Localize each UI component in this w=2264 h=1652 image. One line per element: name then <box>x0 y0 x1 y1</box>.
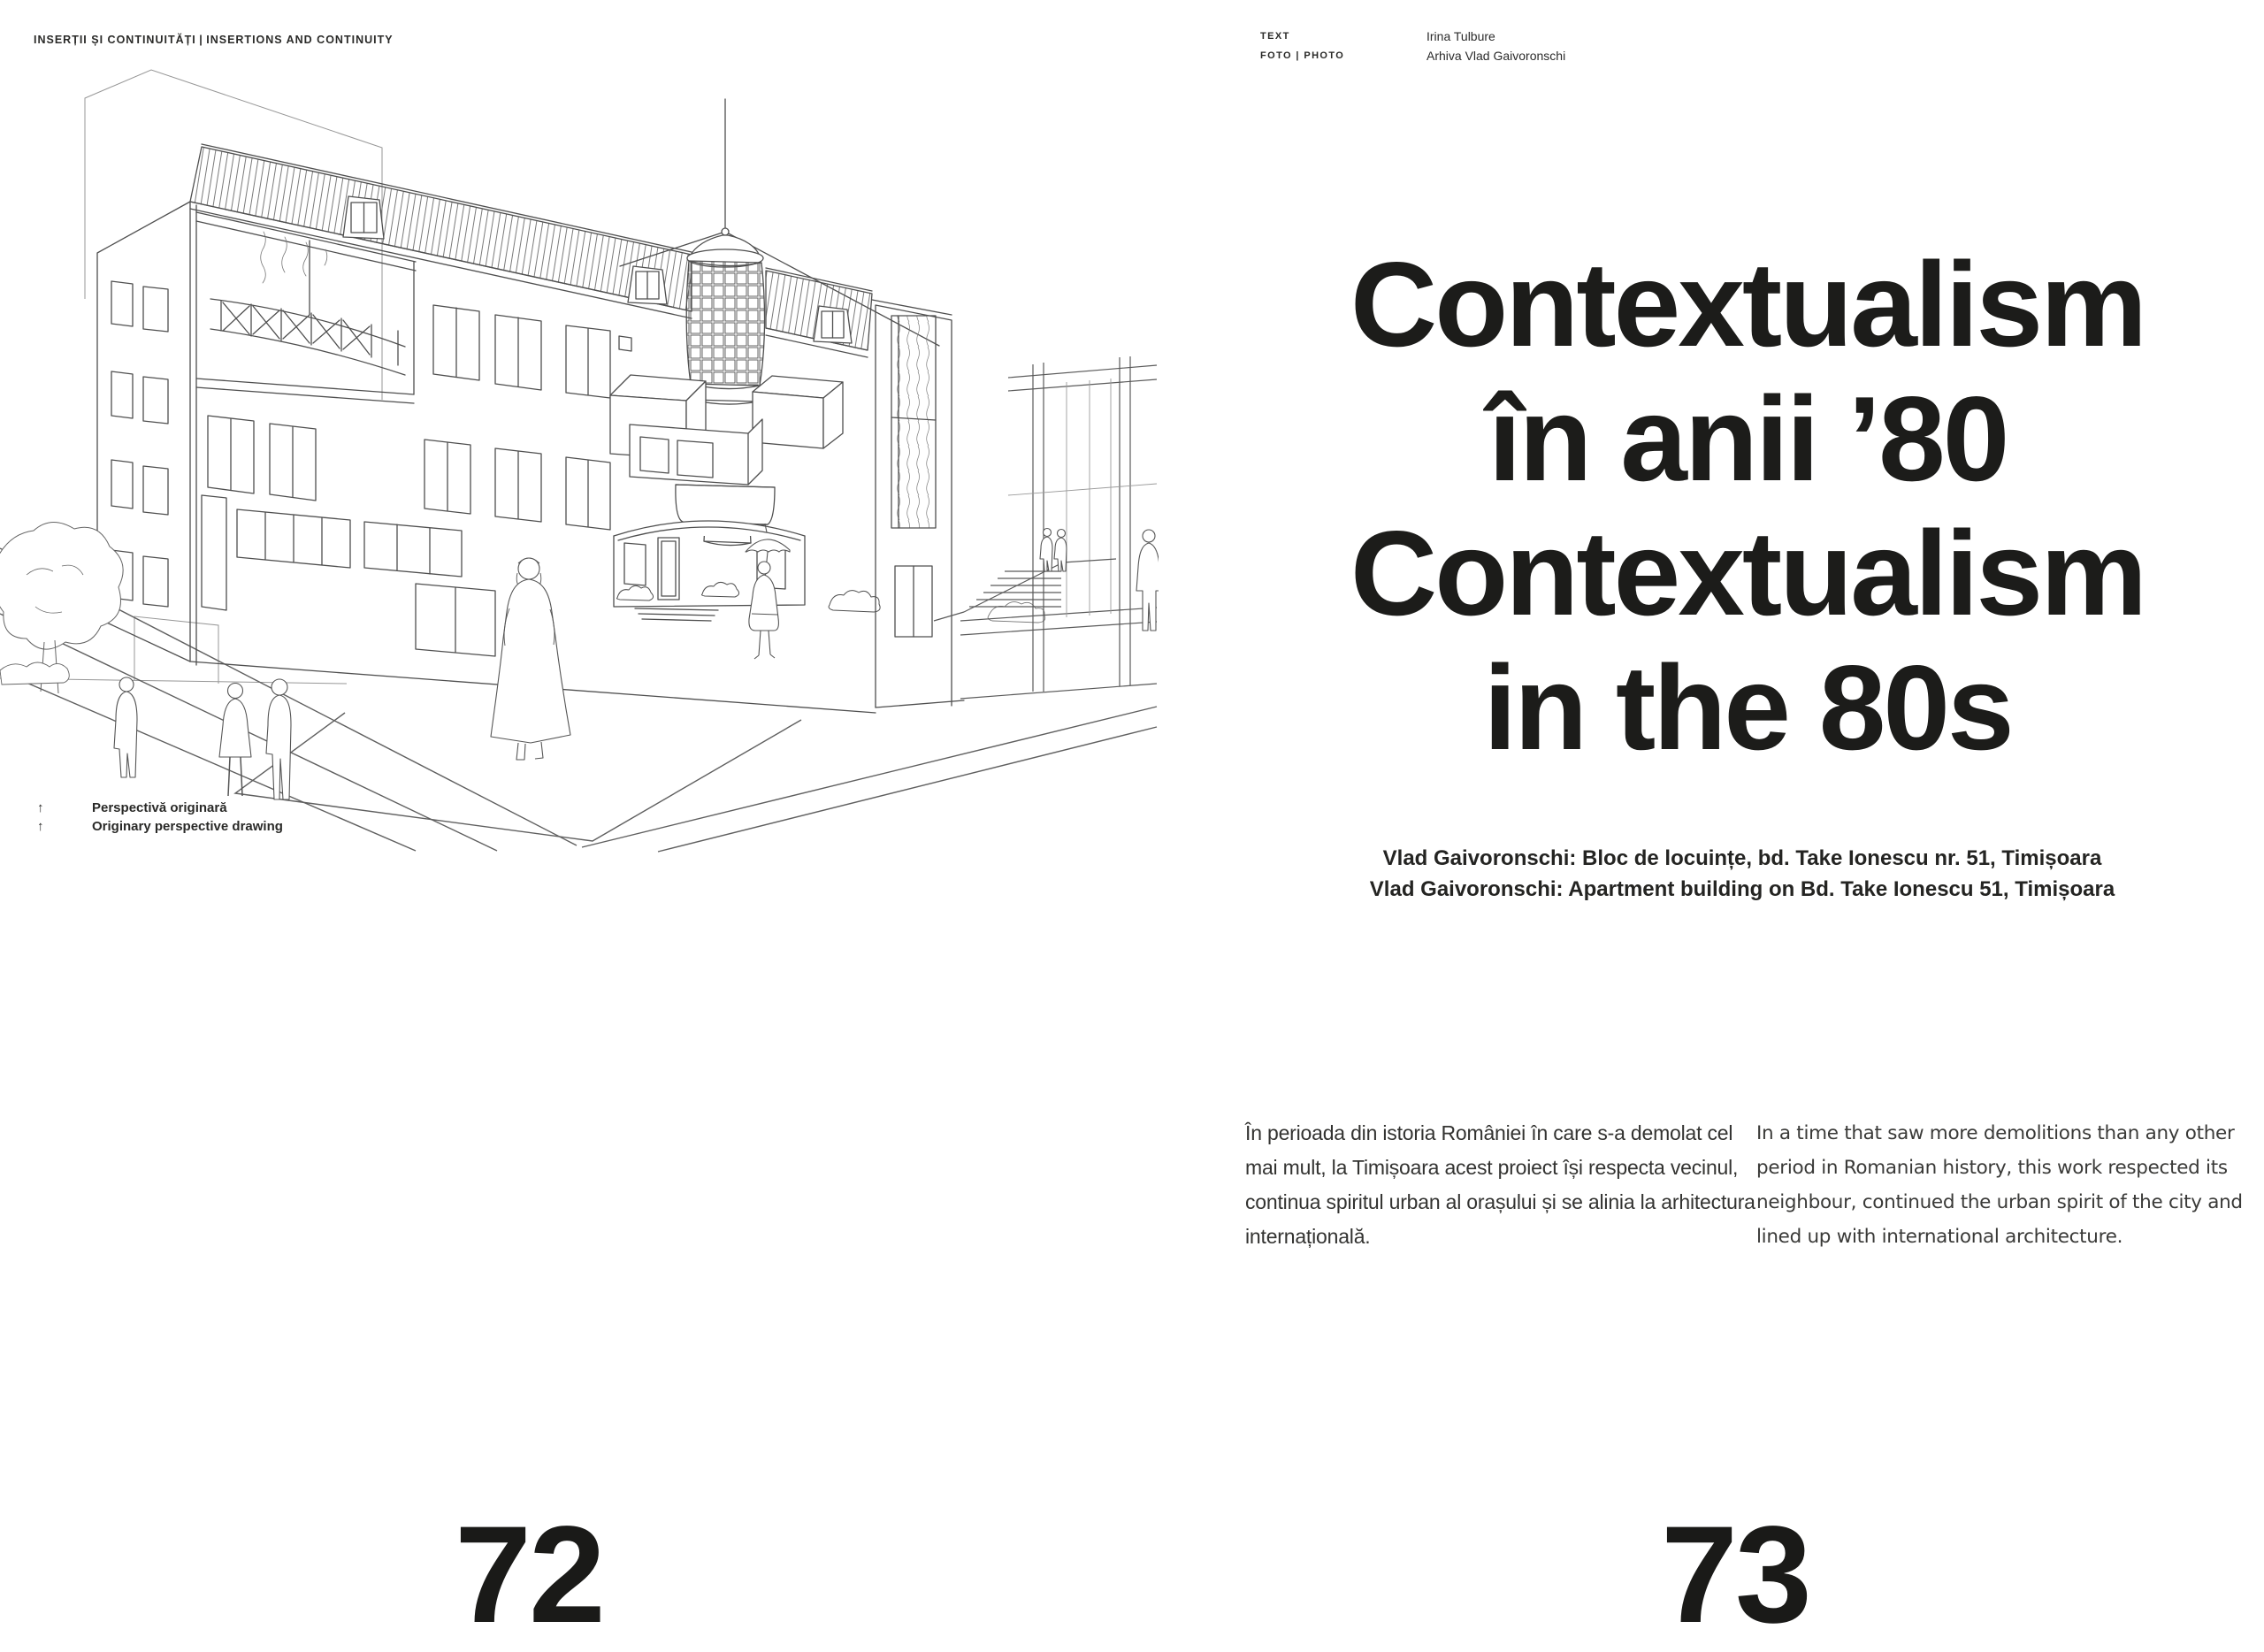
caption-row: ↑ Originary perspective drawing <box>37 817 283 836</box>
page-72: INSERȚII ȘI CONTINUITĂȚI | INSERTIONS AN… <box>0 0 1132 1652</box>
figure-caption: ↑ Perspectivă originară ↑ Originary pers… <box>37 799 283 836</box>
page-73: TEXT Irina Tulbure FOTO | PHOTO Arhiva V… <box>1132 0 2264 1652</box>
subtitle-line-ro: Vlad Gaivoronschi: Bloc de locuințe, bd.… <box>1220 843 2264 874</box>
page-number-right: 73 <box>1594 1496 1877 1652</box>
page-number-left: 72 <box>387 1496 670 1652</box>
book-spread: INSERȚII ȘI CONTINUITĂȚI | INSERTIONS AN… <box>0 0 2264 1652</box>
credit-label-text: TEXT <box>1260 27 1426 46</box>
subtitle-line-en: Vlad Gaivoronschi: Apartment building on… <box>1220 874 2264 905</box>
perspective-drawing <box>0 67 1159 856</box>
arrow-up-icon: ↑ <box>37 799 92 817</box>
article-subtitle: Vlad Gaivoronschi: Bloc de locuințe, bd.… <box>1220 843 2264 905</box>
credit-value-photo: Arhiva Vlad Gaivoronschi <box>1426 47 1565 65</box>
running-head: INSERȚII ȘI CONTINUITĂȚI | INSERTIONS AN… <box>34 34 394 46</box>
body-column-english: In a time that saw more demolitions than… <box>1756 1116 2252 1254</box>
title-line: în anii ’80 <box>1231 371 2264 506</box>
credits-block: TEXT Irina Tulbure FOTO | PHOTO Arhiva V… <box>1260 27 1565 65</box>
caption-row: ↑ Perspectivă originară <box>37 799 283 817</box>
caption-text-ro: Perspectivă originară <box>92 799 283 817</box>
title-line: in the 80s <box>1231 640 2264 775</box>
body-column-romanian: În perioada din istoria României în care… <box>1245 1116 1765 1254</box>
article-title: Contextualism în anii ’80 Contextualism … <box>1231 237 2264 775</box>
credit-value-text: Irina Tulbure <box>1426 27 1565 46</box>
caption-text-en: Originary perspective drawing <box>92 817 283 836</box>
title-line: Contextualism <box>1231 237 2264 371</box>
credit-label-photo: FOTO | PHOTO <box>1260 47 1426 65</box>
arrow-up-icon: ↑ <box>37 817 92 836</box>
title-line: Contextualism <box>1231 506 2264 640</box>
